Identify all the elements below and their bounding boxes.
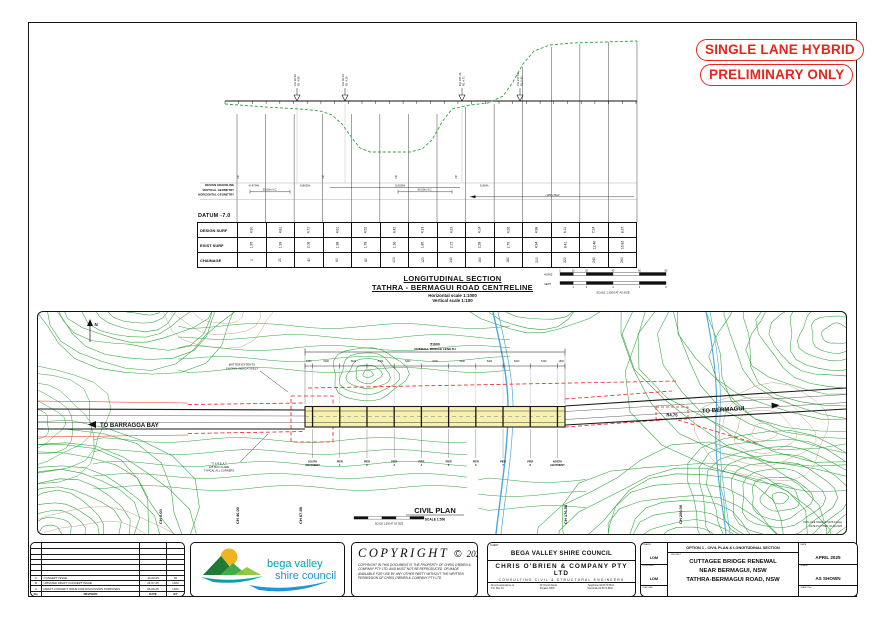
contour-line bbox=[756, 312, 846, 388]
direction-left-label: TO BARRAGGA BAY bbox=[100, 423, 159, 429]
scalebar-tick-label: 0 bbox=[559, 269, 561, 272]
support-label: PIER bbox=[473, 460, 479, 464]
copyright-word: COPYRIGHT bbox=[358, 546, 449, 561]
contour-line bbox=[38, 503, 99, 534]
support-label: PIER bbox=[500, 460, 506, 464]
contour-line bbox=[153, 312, 284, 348]
contour-line bbox=[478, 478, 586, 483]
row-label: EXIST SURF bbox=[198, 238, 238, 252]
vertical-scale-note: Vertical scale 1:100 bbox=[330, 298, 575, 303]
revision-header-cell: DATE bbox=[140, 591, 167, 596]
contour-line bbox=[334, 348, 410, 401]
north-arrow-icon: N bbox=[87, 319, 98, 342]
flare-note-line3: TYPICAL ALL CORNERS bbox=[204, 469, 235, 473]
value-cell: 12.46 bbox=[580, 238, 609, 252]
contour-line bbox=[752, 477, 813, 520]
chainage-label: CH 67.58 bbox=[298, 506, 303, 524]
sheet-label: SHEET No. bbox=[799, 586, 857, 589]
contour-line bbox=[724, 312, 846, 419]
scalebar-segment bbox=[587, 282, 614, 285]
scalebar-segment bbox=[368, 517, 382, 520]
extent-dashed-line bbox=[308, 381, 678, 388]
value-cell: 6.11 bbox=[552, 223, 581, 237]
value-cell: 4.14 bbox=[466, 223, 495, 237]
scalebar-caption: SCALE 1:1000 AT A3 SIZE bbox=[596, 291, 630, 295]
firm-address-col2: 13 Church Road Tomakin NSW bbox=[539, 584, 583, 595]
table-row: CHAINAGE02040608010012014016018020022024… bbox=[198, 252, 636, 267]
date-label: DATE bbox=[799, 543, 857, 546]
flare-note-line2: 125 MAX FLARE bbox=[209, 465, 230, 469]
row-label: CHAINAGE bbox=[198, 253, 238, 267]
road-edge-line bbox=[38, 416, 305, 417]
title-block-meta: DATE APRIL 2025 SCALE AS SHOWN SHEET No.… bbox=[799, 543, 857, 597]
contour-line bbox=[346, 359, 391, 389]
value-cell: 4.42 bbox=[381, 223, 410, 237]
contour-line bbox=[38, 400, 66, 449]
revision-header-cell: BY bbox=[167, 591, 184, 596]
extent-dashed-line bbox=[188, 403, 305, 405]
value-cell: 1.36 bbox=[381, 238, 410, 252]
value-cell: 60 bbox=[324, 253, 353, 267]
scalebar-segment bbox=[640, 273, 667, 276]
client-and-firm-box: CLIENT BEGA VALLEY SHIRE COUNCIL CHRIS O… bbox=[487, 542, 636, 597]
copyright-box: COPYRIGHT © 2025 COPYRIGHT IN THIS DOCUM… bbox=[351, 542, 478, 597]
value-cell: 0 bbox=[238, 253, 267, 267]
contour-line bbox=[772, 492, 789, 504]
civil-plan-title: CIVIL PLAN bbox=[414, 506, 456, 515]
logo-text-line2: shire council bbox=[275, 570, 336, 582]
value-cell: 4.98 bbox=[523, 223, 552, 237]
support-label: PIER bbox=[418, 460, 424, 464]
support-label: SOUTH bbox=[308, 460, 317, 464]
contour-line bbox=[53, 312, 217, 350]
vip-triangle-icon bbox=[342, 95, 348, 101]
value-cell: 8.37 bbox=[609, 223, 637, 237]
value-cell: 220 bbox=[552, 253, 581, 267]
value-cell: 8.41 bbox=[552, 238, 581, 252]
scalebar-tick-label: 60 bbox=[638, 269, 641, 272]
chainage-label: CH 0.00 bbox=[158, 509, 163, 524]
contour-line bbox=[38, 312, 253, 374]
chainage-label: CH 250.00 bbox=[678, 504, 683, 524]
support-label: 6 bbox=[475, 463, 477, 467]
contour-line bbox=[93, 438, 467, 443]
section-title: LONGITUDINAL SECTION bbox=[330, 274, 575, 283]
value-cell: 4.61 bbox=[324, 223, 353, 237]
contour-line bbox=[709, 312, 846, 419]
title-block-center: OPTION 1 - CIVIL PLAN & LONGITUDINAL SEC… bbox=[668, 543, 799, 597]
civil-plan-scale: SCALE 1:500 bbox=[425, 518, 446, 522]
contour-line bbox=[185, 312, 247, 323]
logo-text-line1: bega valley bbox=[267, 558, 323, 570]
contour-line bbox=[38, 490, 104, 534]
value-cell: 1.99 bbox=[267, 238, 296, 252]
scalebar-tick-label: 2 bbox=[586, 286, 588, 289]
support-label: PIER bbox=[446, 460, 452, 464]
value-cell: 120 bbox=[409, 253, 438, 267]
project-line2: NEAR BERMAGUI, NSW bbox=[668, 567, 798, 576]
value-cell: 2.08 bbox=[295, 238, 324, 252]
value-cell: 4.26 bbox=[495, 223, 524, 237]
direction-right-label: TO BERMAGUI bbox=[702, 406, 745, 415]
longitudinal-section-titles: LONGITUDINAL SECTION TATHRA - BERMAGUI R… bbox=[330, 274, 575, 303]
contour-line bbox=[38, 408, 49, 440]
vip-triangle-icon bbox=[294, 95, 300, 101]
value-cell: 20 bbox=[267, 253, 296, 267]
revision-header-cell: REVISION bbox=[42, 591, 140, 596]
span-dim-value: 5400 bbox=[432, 360, 438, 363]
value-cell: 140 bbox=[438, 253, 467, 267]
checked-cell: CHECKED NRB bbox=[641, 586, 667, 597]
firm-address-col3: Telephone 02 8174 8811 Facsimile 02 8174… bbox=[588, 584, 632, 595]
span-dim-value: 1500 bbox=[306, 360, 312, 363]
marker-level-label: RL 4.26 bbox=[344, 76, 348, 86]
logo-wave-blue-icon bbox=[249, 581, 329, 591]
vc-value: 30.00m V.C. bbox=[263, 188, 278, 192]
support-label: ABUTMENT bbox=[550, 463, 565, 467]
title-block: DRAWN LDM DESIGNED LDM CHECKED NRB SIGNE… bbox=[640, 542, 858, 597]
section-profile bbox=[225, 41, 637, 152]
vc-value: 60.00m V.C. bbox=[418, 188, 433, 192]
dimension-lines bbox=[240, 349, 565, 463]
extent-dashed-line bbox=[678, 420, 758, 444]
value-cell: 2.15 bbox=[438, 238, 467, 252]
designed-label: DESIGNED bbox=[641, 565, 667, 568]
scalebar-segment bbox=[382, 517, 396, 520]
contour-line bbox=[38, 452, 155, 534]
support-label: 4 bbox=[421, 463, 423, 467]
date-value: APRIL 2025 bbox=[815, 555, 840, 560]
scale-label: SCALE bbox=[799, 565, 857, 568]
contour-line bbox=[743, 312, 846, 406]
existing-surface-line bbox=[225, 41, 637, 152]
scalebar-segment bbox=[560, 282, 573, 285]
contour-line bbox=[80, 312, 207, 337]
row-label: DESIGN SURF bbox=[198, 223, 238, 237]
value-cell: 1.85 bbox=[409, 238, 438, 252]
support-label: 8 bbox=[530, 463, 532, 467]
contour-line bbox=[634, 511, 758, 534]
contour-line bbox=[746, 312, 846, 394]
geometry-row-label: VERTICAL GEOMETRY bbox=[202, 188, 234, 192]
table-row: EXIST SURF1.951.992.081.981.781.361.852.… bbox=[198, 237, 636, 252]
grade-value: -0.470% bbox=[248, 184, 260, 188]
revision-grid: CCONCEPT ISSUE10-09-25JDBUPDATED DRAFT C… bbox=[31, 543, 184, 596]
grade-value: 0.802% bbox=[300, 184, 311, 188]
title-block-credits: DRAWN LDM DESIGNED LDM CHECKED NRB SIGNE… bbox=[641, 543, 668, 597]
vert-label: VERT bbox=[544, 282, 551, 286]
span-dim-value: 5400 bbox=[378, 360, 384, 363]
marker-level-label: RL 6.42 bbox=[519, 76, 523, 86]
value-cell: 40 bbox=[295, 253, 324, 267]
designed-cell: DESIGNED LDM bbox=[641, 565, 667, 587]
longitudinal-section-drawing: CH 18.93RL 4.90CH 46.04RL 4.26CH 187.36R… bbox=[170, 36, 640, 222]
client-cell: CLIENT BEGA VALLEY SHIRE COUNCIL bbox=[488, 543, 635, 561]
value-cell: 4.94 bbox=[523, 238, 552, 252]
contour-line bbox=[178, 335, 510, 340]
client-label: CLIENT bbox=[490, 544, 499, 547]
contour-line bbox=[812, 316, 846, 353]
contour-line bbox=[38, 373, 94, 474]
firm-subtitle: CONSULTING CIVIL & STRUCTURAL ENGINEERS bbox=[488, 578, 635, 582]
civil-plan-drawing: SOUTHABUTMENTPIER1PIER2PIER3PIER4PIER5PI… bbox=[38, 312, 846, 534]
contour-line bbox=[38, 469, 140, 534]
scalebar-tick-label: 80 bbox=[665, 269, 668, 272]
horizontal-scale-note: Horizontal scale 1:1000 bbox=[330, 293, 575, 298]
contour-line bbox=[480, 312, 582, 319]
value-cell: 80 bbox=[352, 253, 381, 267]
firm-cell: CHRIS O'BRIEN & COMPANY PTY LTD CONSULTI… bbox=[488, 561, 635, 583]
contour-line bbox=[339, 353, 399, 395]
copyright-statement: COPYRIGHT IN THIS DOCUMENT IS THE PROPER… bbox=[358, 563, 471, 581]
section-subtitle: TATHRA - BERMAGUI ROAD CENTRELINE bbox=[330, 283, 575, 292]
contour-line bbox=[104, 312, 169, 315]
support-label: PIER bbox=[527, 460, 533, 464]
contour-line bbox=[769, 312, 846, 377]
span-dim-value: 5400 bbox=[487, 360, 493, 363]
revision-table: CCONCEPT ISSUE10-09-25JDBUPDATED DRAFT C… bbox=[30, 542, 185, 597]
contour-line bbox=[93, 450, 467, 455]
drawn-value: LDM bbox=[650, 556, 658, 560]
contour-line bbox=[638, 312, 846, 462]
value-cell: 4.33 bbox=[409, 223, 438, 237]
contour-line bbox=[39, 312, 248, 371]
scalebar-segment bbox=[410, 517, 424, 520]
chainage-label: CH 40.00 bbox=[235, 506, 240, 524]
copyright-year: 2025 bbox=[467, 549, 478, 559]
value-cell: 7.24 bbox=[580, 223, 609, 237]
contour-line bbox=[615, 501, 769, 534]
sheet-cell: SHEET No. A3 OF 4 bbox=[799, 586, 857, 597]
scalebar-segment bbox=[396, 517, 410, 520]
client-name: BEGA VALLEY SHIRE COUNCIL bbox=[488, 550, 635, 557]
value-cell: 4.52 bbox=[352, 223, 381, 237]
vip-triangle-icon bbox=[517, 95, 523, 101]
project-cell: PROJECT CUTTAGEE BRIDGE RENEWAL NEAR BER… bbox=[668, 553, 798, 597]
scalebar-tick-label: 10 bbox=[572, 269, 575, 272]
road-edge-line bbox=[38, 409, 305, 410]
contour-line bbox=[356, 365, 382, 384]
scale-cell: SCALE AS SHOWN bbox=[799, 565, 857, 587]
revision-header-cell: No. bbox=[31, 591, 42, 596]
logo-wave-teal-icon bbox=[201, 576, 263, 583]
span-dim-value: 5400 bbox=[405, 360, 411, 363]
value-cell: 260 bbox=[609, 253, 637, 267]
stamp-single-lane-hybrid: SINGLE LANE HYBRID bbox=[696, 39, 864, 61]
value-cell: 1.95 bbox=[238, 238, 267, 252]
section-annotations: CH 18.93RL 4.90CH 46.04RL 4.26CH 187.36R… bbox=[198, 72, 637, 199]
chainage-label: CH 176.58 bbox=[563, 504, 568, 524]
span-dim-value: 5400 bbox=[541, 360, 547, 363]
batter-note-line2: SHOWN INDICATIVELY bbox=[226, 367, 258, 371]
value-cell: 200 bbox=[523, 253, 552, 267]
contour-line bbox=[38, 510, 85, 534]
bega-valley-logo: bega valley shire council bbox=[191, 543, 344, 596]
contour-line bbox=[93, 486, 467, 491]
overall-dim-value: 51600 bbox=[430, 343, 440, 347]
project-label: PROJECT bbox=[670, 554, 682, 557]
firm-name: CHRIS O'BRIEN & COMPANY PTY LTD bbox=[488, 563, 635, 577]
stamp-preliminary-only: PRELIMINARY ONLY bbox=[700, 64, 853, 86]
grade-value: 0.000% bbox=[395, 184, 406, 188]
radius-label: R4.75 bbox=[666, 413, 678, 418]
value-cell: 2.28 bbox=[466, 238, 495, 252]
contour-line bbox=[593, 484, 796, 534]
scalebar-segment bbox=[573, 273, 586, 276]
contour-line bbox=[461, 312, 610, 333]
support-label: PIER bbox=[337, 460, 343, 464]
extent-dashed-line bbox=[188, 432, 305, 434]
value-cell: 160 bbox=[466, 253, 495, 267]
marker-level-label: RL 4.71 bbox=[461, 76, 465, 86]
project-line3: TATHRA-BERMAGUI ROAD, NSW bbox=[668, 576, 798, 585]
overall-dim-label: OVERALL BRIDGE LENGTH bbox=[414, 347, 456, 351]
svg-text:N: N bbox=[95, 322, 98, 327]
contour-line bbox=[38, 525, 63, 534]
scalebar-tick-label: 4 bbox=[612, 286, 614, 289]
section-scalebar: HORIZ01020406080VERT12468SCALE 1:1000 AT… bbox=[543, 268, 678, 298]
firm-address-col1: All correspondence to: P.O. Box 19 bbox=[491, 584, 535, 595]
contour-line bbox=[706, 312, 846, 432]
generated-plan-labels: SOUTHABUTMENTPIER1PIER2PIER3PIER4PIER5PI… bbox=[158, 360, 683, 526]
designed-value: LDM bbox=[650, 577, 658, 581]
table-row: DESIGN SURF4.904.814.714.614.524.424.334… bbox=[198, 223, 636, 237]
contour-line bbox=[677, 312, 846, 439]
contour-line bbox=[363, 370, 374, 377]
radius-value: ~125m Rad bbox=[545, 193, 560, 197]
flare-note-line1: T.I & R.E.A.T bbox=[211, 462, 227, 466]
vip-triangle-icon bbox=[459, 95, 465, 101]
firm-address-row: All correspondence to: P.O. Box 19 13 Ch… bbox=[488, 583, 635, 596]
left-arrow-icon bbox=[88, 421, 96, 428]
scalebar-segment bbox=[613, 282, 640, 285]
horiz-label: HORIZ bbox=[544, 273, 553, 277]
support-label: 3 bbox=[393, 463, 395, 467]
extent-dashed-line bbox=[565, 420, 663, 427]
vip-label: VIP bbox=[321, 175, 325, 179]
scalebar-tick-label: 6 bbox=[639, 286, 641, 289]
value-cell: 100 bbox=[381, 253, 410, 267]
drawing-title: OPTION 1 - CIVIL PLAN & LONGITUDINAL SEC… bbox=[668, 543, 798, 553]
scalebar-tick-label: 8 bbox=[665, 286, 667, 289]
contour-line bbox=[688, 431, 846, 534]
support-label: PIER bbox=[391, 460, 397, 464]
longitudinal-section-table: DESIGN SURF4.904.814.714.614.524.424.334… bbox=[197, 222, 637, 268]
project-line1: CUTTAGEE BRIDGE RENEWAL bbox=[668, 558, 798, 567]
date-plotted-note: DATE PLOTTED: 10-09-2025 bbox=[809, 525, 842, 528]
scalebar-segment bbox=[613, 273, 640, 276]
copyright-symbol-icon: © bbox=[454, 549, 461, 560]
scalebar-segment bbox=[587, 273, 614, 276]
contour-line bbox=[478, 506, 586, 511]
value-cell: 4.71 bbox=[295, 223, 324, 237]
support-label: PIER bbox=[364, 460, 370, 464]
value-cell: 1.98 bbox=[324, 238, 353, 252]
drawn-label: DRAWN bbox=[641, 543, 667, 546]
scalebar-tick-label: 20 bbox=[585, 269, 588, 272]
civil-plan-panel: SOUTHABUTMENTPIER1PIER2PIER3PIER4PIER5PI… bbox=[37, 311, 847, 535]
geometry-row-label: HORIZONTAL GEOMETRY bbox=[198, 193, 234, 197]
support-label: ABUTMENT bbox=[305, 463, 320, 467]
marker-level-label: RL 4.90 bbox=[296, 76, 300, 86]
contour-line bbox=[790, 312, 846, 371]
datum-label: DATUM -7.0 bbox=[198, 213, 230, 219]
vip-label: VIP bbox=[454, 175, 458, 179]
scalebar-segment bbox=[560, 273, 573, 276]
contour-line bbox=[821, 323, 846, 344]
geometry-row-label: DESIGN GRADELINE bbox=[205, 183, 234, 187]
drawn-cell: DRAWN LDM bbox=[641, 543, 667, 565]
value-cell: 4.81 bbox=[267, 223, 296, 237]
grade-value: 5.66% bbox=[480, 184, 489, 188]
support-label: NORTH bbox=[553, 460, 562, 464]
support-label: 2 bbox=[366, 463, 368, 467]
contour-line bbox=[652, 527, 730, 534]
contour-line bbox=[93, 462, 467, 467]
scalebar-segment bbox=[640, 282, 667, 285]
plan-scalebar-caption: SCALE 1:500 AT A3 SIZE bbox=[375, 523, 404, 526]
dwg-file-note: DWG FILE NAME: 170425-43.dwg bbox=[803, 521, 842, 524]
value-cell: 2.79 bbox=[495, 238, 524, 252]
contour-line bbox=[657, 312, 846, 450]
support-label: 5 bbox=[448, 463, 450, 467]
note-leader bbox=[260, 371, 288, 392]
span-dim-value: 5400 bbox=[324, 360, 330, 363]
contour-line bbox=[38, 466, 160, 534]
span-dim-value: 5400 bbox=[460, 360, 466, 363]
scalebar-segment bbox=[354, 517, 368, 520]
checked-label: CHECKED bbox=[641, 586, 667, 589]
span-dim-value: 1500 bbox=[559, 360, 565, 363]
extent-dashed-line bbox=[565, 391, 672, 399]
contour-line bbox=[38, 312, 232, 360]
span-dim-value: 5400 bbox=[514, 360, 520, 363]
council-logo-box: bega valley shire council bbox=[190, 542, 345, 597]
contour-line bbox=[672, 312, 846, 456]
span-dim-value: 5400 bbox=[351, 360, 357, 363]
date-cell: DATE APRIL 2025 bbox=[799, 543, 857, 565]
contour-line bbox=[38, 487, 121, 534]
value-cell: 4.90 bbox=[238, 223, 267, 237]
scalebar-segment bbox=[573, 282, 586, 285]
value-cell: 180 bbox=[495, 253, 524, 267]
contour-line bbox=[93, 474, 467, 479]
value-cell: 4.23 bbox=[438, 223, 467, 237]
value-cell: 1.78 bbox=[352, 238, 381, 252]
scalebar-tick-label: 40 bbox=[612, 269, 615, 272]
vip-label: VIP bbox=[236, 175, 240, 179]
value-cell: 240 bbox=[580, 253, 609, 267]
scale-value: AS SHOWN bbox=[815, 576, 840, 581]
vip-label: VIP bbox=[394, 175, 398, 179]
radius-arrowhead-icon bbox=[470, 195, 476, 198]
scalebar-tick-label: 1 bbox=[573, 286, 575, 289]
value-cell: 16.82 bbox=[609, 238, 637, 252]
